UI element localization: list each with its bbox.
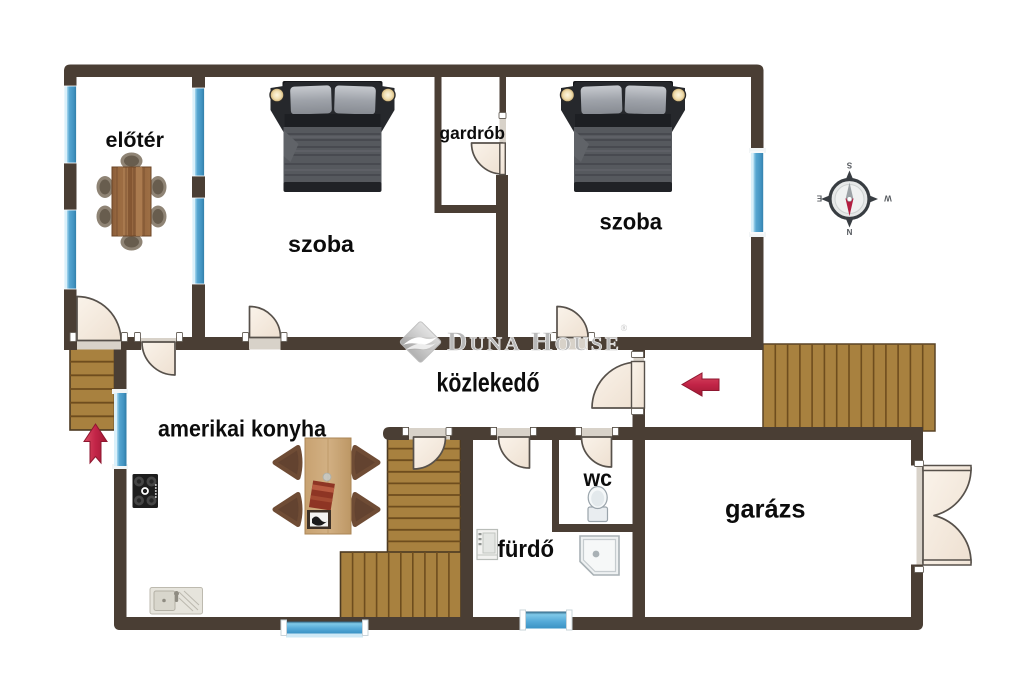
svg-text:szoba: szoba	[600, 209, 663, 235]
svg-text:S: S	[846, 161, 852, 170]
svg-text:közlekedő: közlekedő	[437, 368, 540, 398]
svg-text:garázs: garázs	[725, 494, 806, 524]
svg-text:DUNA HOUSE: DUNA HOUSE	[447, 327, 621, 357]
svg-text:fürdő: fürdő	[498, 536, 555, 563]
svg-text:amerikai konyha: amerikai konyha	[158, 416, 327, 442]
svg-text:wc: wc	[583, 465, 613, 491]
svg-text:E: E	[816, 194, 822, 203]
svg-text:előtér: előtér	[106, 128, 165, 152]
svg-text:gardrób: gardrób	[440, 123, 506, 143]
svg-text:N: N	[846, 227, 852, 236]
svg-text:szoba: szoba	[288, 231, 354, 257]
svg-text:®: ®	[621, 323, 628, 333]
svg-text:W: W	[884, 194, 892, 203]
